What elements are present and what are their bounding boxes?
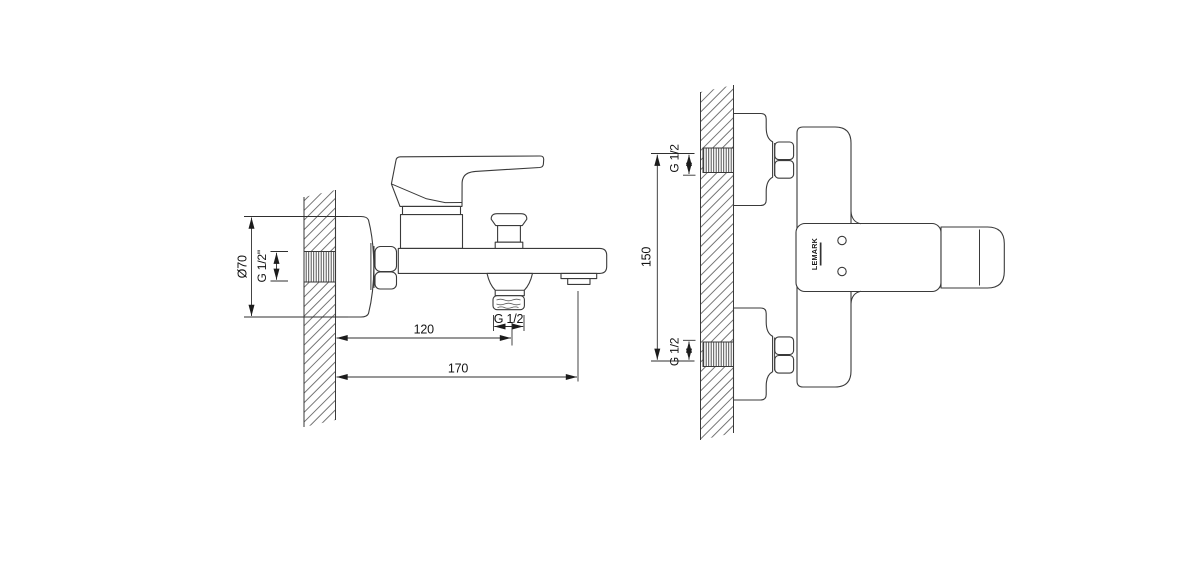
cartridge-ring [403,206,461,214]
dim-wall-to-spout-tip: 170 [337,291,579,382]
spout-aerator [561,273,597,284]
dim-wall-to-shower-outlet: 120 [337,323,513,346]
label-wall-to-spout-tip: 170 [448,362,469,376]
screw-hole-bottom [838,267,846,275]
side-view: Ø70 G 1/2" G 1/2 120 170 [236,156,607,427]
label-inlet-thread-top: G 1/2 [668,144,682,173]
dim-shower-outlet-thread: G 1/2 [494,312,525,331]
union-nut-top-2 [775,161,794,179]
diverter-knob [491,214,527,250]
escutcheon-bottom [734,308,773,400]
dim-inlet-thread: G 1/2" [255,250,288,282]
union-nut-bottom-2 [775,356,794,374]
spout-body [398,248,606,273]
label-inlet-thread: G 1/2" [255,250,269,282]
union-nut-bottom-1 [775,337,794,355]
handle-lever [391,156,543,206]
label-flange-diameter: Ø70 [236,255,250,278]
inlet-nipple [304,252,336,283]
screw-hole-top [838,236,846,244]
technical-drawing-page: Ø70 G 1/2" G 1/2 120 170 [0,0,1200,564]
inlet-nipple-top [703,148,734,173]
label-inlet-spacing: 150 [640,247,654,268]
handle [941,227,1004,288]
shower-outlet [487,273,533,309]
label-wall-to-shower-outlet: 120 [414,323,435,337]
wall-hatch [304,190,336,427]
brand-tagline-bar [820,243,822,266]
inlet-nipple-bottom [703,342,734,367]
mixer-body-column [401,215,463,249]
drawing-canvas: Ø70 G 1/2" G 1/2 120 170 [0,0,1200,564]
union-nut-top-1 [775,142,794,160]
label-inlet-thread-bottom: G 1/2 [668,337,682,366]
wall-hatch [701,85,734,440]
escutcheon [336,217,374,318]
top-view: LEMARK G 1/2 150 G 1/2 [640,85,1005,440]
union-nut-lower [375,272,397,289]
label-shower-outlet-thread: G 1/2 [494,312,524,326]
union-nut-upper [375,247,397,272]
escutcheon-top [734,114,773,206]
dim-inlet-spacing: 150 [640,155,658,360]
brand-mark-text: LEMARK [810,237,819,270]
